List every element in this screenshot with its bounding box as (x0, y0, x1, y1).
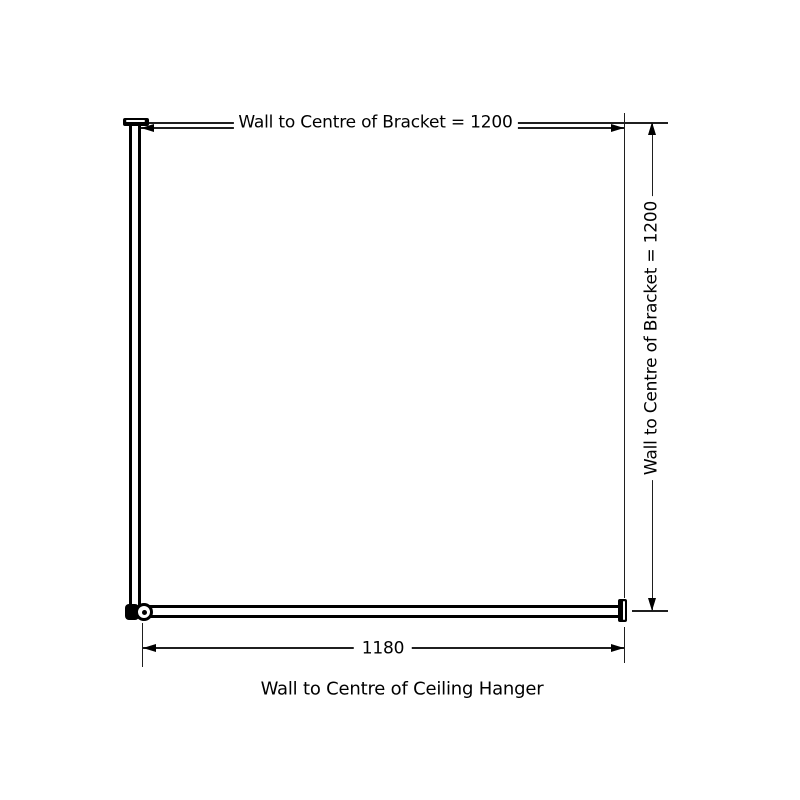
bottom-dimension-arrow-right-icon (611, 644, 624, 652)
horizontal-rail (148, 605, 619, 618)
right-dimension-arrow-up-icon (648, 122, 656, 135)
right-extension-line-upper (624, 113, 626, 598)
ceiling-hanger-joint (135, 603, 153, 621)
vertical-rail (129, 124, 141, 606)
bottom-dimension-arrow-left-icon (143, 644, 156, 652)
cap-highlight (126, 120, 145, 122)
right-dimension-label: Wall to Centre of Bracket = 1200 (641, 196, 662, 480)
joint-centre-dot (142, 610, 147, 615)
ceiling-bracket-cap (123, 118, 149, 126)
bracket-highlight (623, 601, 625, 620)
wall-bracket-end (618, 599, 627, 622)
diagram-canvas: Wall to Centre of Bracket = 1200 Wall to… (0, 0, 800, 800)
right-dimension-arrow-down-icon (648, 598, 656, 611)
bottom-dimension-value: 1180 (354, 638, 412, 659)
top-dimension-label: Wall to Centre of Bracket = 1200 (233, 112, 517, 133)
diagram-caption: Wall to Centre of Ceiling Hanger (261, 679, 544, 700)
top-dimension-arrow-right-icon (611, 124, 624, 132)
